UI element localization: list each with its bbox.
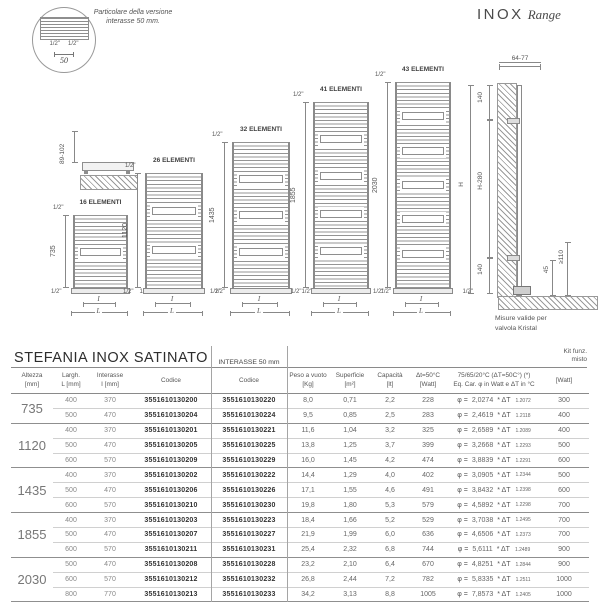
- interasse-dim-label: I: [395, 296, 447, 303]
- watt-cell: 399: [409, 442, 447, 449]
- interasse-cell: 470: [89, 487, 131, 494]
- capacita-cell: 5,2: [371, 517, 409, 524]
- superficie-cell: 1,80: [329, 502, 371, 509]
- equation-cell: φ =5,6111* ΔT1.2489: [447, 546, 541, 553]
- interasse-cell: 370: [89, 517, 131, 524]
- table-row: 5004703551610130208355161013022823,22,10…: [53, 558, 589, 573]
- col-codice-50: Codice: [211, 368, 287, 393]
- equation-cell: φ =4,8251* ΔT1.2844: [447, 561, 541, 568]
- table-row: 4003703551610130201355161013022111,61,04…: [53, 424, 589, 439]
- elements-label: 41 ELEMENTI: [306, 86, 376, 93]
- fitting-label: 1/2": [125, 163, 135, 169]
- floor-hatch: [498, 296, 598, 310]
- codice-cell: 3551610130209: [131, 457, 211, 464]
- fitting-label: 1/2": [51, 289, 61, 295]
- codice-50-cell: 3551610130224: [211, 412, 287, 419]
- largh-cell: 600: [53, 457, 89, 464]
- table-row: 6005703551610130212355161013023226,82,44…: [53, 573, 589, 588]
- watt-cell: 474: [409, 457, 447, 464]
- capacita-cell: 4,2: [371, 457, 409, 464]
- kit-cell: 600: [541, 457, 587, 464]
- altezza-value: 1120: [11, 424, 53, 468]
- codice-cell: 3551610130213: [131, 591, 211, 598]
- towel-opening: [237, 208, 285, 222]
- capacita-cell: 5,3: [371, 502, 409, 509]
- largh-cell: 400: [53, 427, 89, 434]
- dim-h-280: H-280: [477, 170, 484, 192]
- fitting-label: 1/2": [291, 289, 301, 295]
- kit-cell: 700: [541, 502, 587, 509]
- towel-opening: [78, 245, 123, 259]
- superficie-cell: 0,85: [329, 412, 371, 419]
- peso-cell: 11,6: [287, 427, 329, 434]
- capacita-cell: 4,6: [371, 487, 409, 494]
- bottom-collector: [143, 288, 205, 294]
- largh-cell: 800: [53, 591, 89, 598]
- superficie-cell: 1,99: [329, 531, 371, 538]
- kit-cell: 1000: [541, 576, 587, 583]
- wall-hatch: [497, 83, 517, 298]
- kit-cell: 400: [541, 427, 587, 434]
- height-dim-label: 1120: [122, 173, 129, 288]
- watt-cell: 325: [409, 427, 447, 434]
- superficie-cell: 1,45: [329, 457, 371, 464]
- interasse-cell: 470: [89, 442, 131, 449]
- towel-opening: [400, 178, 446, 192]
- towel-opening: [400, 212, 446, 226]
- watt-cell: 579: [409, 502, 447, 509]
- kit-cell: 300: [541, 397, 587, 404]
- codice-cell: 3551610130208: [131, 561, 211, 568]
- interasse-cell: 570: [89, 576, 131, 583]
- largh-cell: 500: [53, 561, 89, 568]
- fitting-label: 1/2": [123, 289, 133, 295]
- interasse-cell: 370: [89, 397, 131, 404]
- superficie-cell: 3,13: [329, 591, 371, 598]
- col-peso: Peso a vuoto[Kg]: [287, 368, 329, 393]
- codice-cell: 3551610130212: [131, 576, 211, 583]
- altezza-group: 735400370355161013020035516101302208,00,…: [11, 394, 589, 424]
- capacita-cell: 7,2: [371, 576, 409, 583]
- equation-cell: φ =5,8335* ΔT1.2511: [447, 576, 541, 583]
- table-row: 4003703551610130203355161013022318,41,66…: [53, 513, 589, 528]
- table-row: 4003703551610130202355161013022214,41,29…: [53, 468, 589, 483]
- table-divider: [287, 346, 288, 602]
- interasse-cell: 570: [89, 502, 131, 509]
- codice-cell: 3551610130207: [131, 531, 211, 538]
- peso-cell: 26,8: [287, 576, 329, 583]
- peso-cell: 23,2: [287, 561, 329, 568]
- larghezza-dim-label: L: [145, 308, 199, 315]
- peso-cell: 21,9: [287, 531, 329, 538]
- col-capacita: Capacità[lt]: [371, 368, 409, 393]
- peso-cell: 16,0: [287, 457, 329, 464]
- codice-cell: 3551610130202: [131, 472, 211, 479]
- larghezza-dim-label: L: [232, 308, 286, 315]
- depth-dim-label: 89-102: [59, 130, 66, 164]
- table-row: 8007703551610130213355161013023334,23,13…: [53, 588, 589, 602]
- towel-opening: [400, 247, 446, 261]
- codice-50-cell: 3551610130226: [211, 487, 287, 494]
- codice-cell: 3551610130204: [131, 412, 211, 419]
- capacita-cell: 6,4: [371, 561, 409, 568]
- fitting-label: 1/2": [293, 92, 303, 98]
- peso-cell: 9,5: [287, 412, 329, 419]
- largh-cell: 500: [53, 412, 89, 419]
- superficie-cell: 1,55: [329, 487, 371, 494]
- codice-50-cell: 3551610130233: [211, 591, 287, 598]
- towel-opening: [318, 244, 364, 258]
- superficie-cell: 1,04: [329, 427, 371, 434]
- larghezza-dim-label: L: [313, 308, 365, 315]
- col-superficie: Superficie[m²]: [329, 368, 371, 393]
- radiator-body: [232, 142, 290, 288]
- radiator-profile: [517, 85, 522, 296]
- radiator-body: [145, 173, 203, 288]
- watt-cell: 782: [409, 576, 447, 583]
- altezza-group: 11204003703551610130201355161013022111,6…: [11, 424, 589, 469]
- col-equation: 75/65/20°C (ΔT=50C°) (*)Eq. Car. φ in Wa…: [447, 368, 541, 393]
- towel-opening: [318, 169, 364, 183]
- kit-cell: 1000: [541, 591, 587, 598]
- fitting-label: 1/2": [212, 132, 222, 138]
- peso-cell: 13,8: [287, 442, 329, 449]
- altezza-value: 735: [11, 394, 53, 423]
- bottom-collector: [393, 288, 453, 294]
- capacita-cell: 3,7: [371, 442, 409, 449]
- peso-cell: 8,0: [287, 397, 329, 404]
- altezza-group: 14354003703551610130202355161013022214,4…: [11, 468, 589, 513]
- codice-50-cell: 3551610130232: [211, 576, 287, 583]
- largh-cell: 600: [53, 502, 89, 509]
- kit-cell: 900: [541, 546, 587, 553]
- col-kit-watt: [Watt]: [541, 368, 587, 393]
- watt-cell: 670: [409, 561, 447, 568]
- col-larghezza: Largh.L [mm]: [53, 368, 89, 393]
- interasse-dim-label: I: [145, 296, 199, 303]
- valve: [513, 286, 531, 295]
- fitting-label: 1/2": [50, 41, 60, 47]
- kit-cell: 500: [541, 442, 587, 449]
- brand-inox: INOX: [477, 6, 524, 23]
- radiator-body: [395, 82, 451, 288]
- interasse-50-group-title: INTERASSE 50 mm: [211, 346, 287, 368]
- table-row: 6005703551610130210355161013023019,81,80…: [53, 498, 589, 512]
- fitting-label: 1/2": [53, 205, 63, 211]
- bottom-collector: [311, 288, 371, 294]
- codice-cell: 3551610130205: [131, 442, 211, 449]
- equation-cell: φ =3,7038* ΔT1.2495: [447, 517, 541, 524]
- interasse-cell: 370: [89, 427, 131, 434]
- altezza-value: 2030: [11, 558, 53, 602]
- largh-cell: 500: [53, 442, 89, 449]
- superficie-cell: 1,25: [329, 442, 371, 449]
- interasse-cell: 470: [89, 412, 131, 419]
- equation-cell: φ =4,5892* ΔT1.2298: [447, 502, 541, 509]
- bracket: [507, 118, 520, 124]
- interasse-50-dim: 50: [33, 56, 95, 65]
- table-title-bar: STEFANIA INOX SATINATO INTERASSE 50 mm K…: [11, 346, 589, 368]
- superficie-cell: 2,44: [329, 576, 371, 583]
- equation-cell: φ =3,8432* ΔT1.2398: [447, 487, 541, 494]
- codice-cell: 3551610130211: [131, 546, 211, 553]
- interasse-cell: 770: [89, 591, 131, 598]
- altezza-group: 18554003703551610130203355161013022318,4…: [11, 513, 589, 558]
- interasse-cell: 370: [89, 472, 131, 479]
- table-divider: [211, 346, 212, 602]
- height-dim-label: 1855: [290, 102, 297, 288]
- table-title: STEFANIA INOX SATINATO: [11, 346, 211, 368]
- superficie-cell: 1,29: [329, 472, 371, 479]
- fitting-label: 1/2": [210, 289, 220, 295]
- towel-opening: [237, 172, 285, 186]
- superficie-cell: 2,10: [329, 561, 371, 568]
- elements-label: 43 ELEMENTI: [388, 66, 458, 73]
- equation-cell: φ =2,6589* ΔT1.2089: [447, 427, 541, 434]
- brand-range: Range: [528, 7, 561, 22]
- largh-cell: 500: [53, 531, 89, 538]
- watt-cell: 402: [409, 472, 447, 479]
- kit-cell: 600: [541, 487, 587, 494]
- col-codice: Codice: [131, 368, 211, 393]
- towel-opening: [318, 207, 364, 221]
- codice-50-cell: 3551610130230: [211, 502, 287, 509]
- interasse-cell: 570: [89, 457, 131, 464]
- table-row: 500470355161013020435516101302249,50,852…: [53, 409, 589, 423]
- equation-cell: φ =7,8573* ΔT1.2405: [447, 591, 541, 598]
- capacita-cell: 6,8: [371, 546, 409, 553]
- fitting-label: 1/2": [375, 72, 385, 78]
- height-dim-label: 2030: [372, 82, 379, 288]
- codice-50-cell: 3551610130221: [211, 427, 287, 434]
- table-row: 5004703551610130206355161013022617,11,55…: [53, 483, 589, 498]
- interasse-cell: 470: [89, 531, 131, 538]
- dim-140-top: 140: [477, 90, 484, 105]
- superficie-cell: 1,66: [329, 517, 371, 524]
- towel-opening: [150, 243, 198, 257]
- kit-header: Kit funz. misto: [541, 346, 587, 368]
- table-row: 5004703551610130207355161013022721,91,99…: [53, 528, 589, 543]
- largh-cell: 400: [53, 472, 89, 479]
- codice-50-cell: 3551610130228: [211, 561, 287, 568]
- codice-cell: 3551610130210: [131, 502, 211, 509]
- bottom-collector: [230, 288, 292, 294]
- peso-cell: 19,8: [287, 502, 329, 509]
- larghezza-dim-label: L: [73, 308, 124, 315]
- equation-cell: φ =3,2668* ΔT1.2293: [447, 442, 541, 449]
- capacita-cell: 4,0: [371, 472, 409, 479]
- depth-range-dim: 64-77: [499, 55, 541, 63]
- towel-opening: [400, 109, 446, 123]
- detail-caption: Particolare della versione interasse 50 …: [92, 8, 174, 27]
- interasse-cell: 570: [89, 546, 131, 553]
- equation-cell: φ =2,0274* ΔT1.2072: [447, 397, 541, 404]
- dim-140-bottom: 140: [477, 262, 484, 277]
- equation-cell: φ =3,8839* ΔT1.2291: [447, 457, 541, 464]
- table-row: 400370355161013020035516101302208,00,712…: [53, 394, 589, 409]
- codice-50-cell: 3551610130222: [211, 472, 287, 479]
- kit-cell: 400: [541, 412, 587, 419]
- bracket: [507, 255, 520, 261]
- capacita-cell: 6,0: [371, 531, 409, 538]
- dim-110: ≥110: [558, 248, 565, 266]
- superficie-cell: 2,32: [329, 546, 371, 553]
- watt-cell: 283: [409, 412, 447, 419]
- peso-cell: 18,4: [287, 517, 329, 524]
- radiator-section-detail: [40, 17, 89, 40]
- watt-cell: 228: [409, 397, 447, 404]
- codice-50-cell: 3551610130229: [211, 457, 287, 464]
- spec-table: STEFANIA INOX SATINATO INTERASSE 50 mm K…: [11, 346, 589, 602]
- table-row: 6005703551610130211355161013023125,42,32…: [53, 543, 589, 557]
- valve-note: Misure valide per valvola Kristal: [495, 314, 587, 334]
- elements-label: 26 ELEMENTI: [138, 157, 210, 164]
- watt-cell: 491: [409, 487, 447, 494]
- altezza-group: 20305004703551610130208355161013022823,2…: [11, 558, 589, 602]
- equation-cell: φ =4,6506* ΔT1.2373: [447, 531, 541, 538]
- dimension-line: [499, 66, 541, 67]
- table-column-headers: Altezza[mm] Largh.L [mm] InterasseI [mm]…: [11, 368, 589, 394]
- peso-cell: 25,4: [287, 546, 329, 553]
- equation-cell: φ =2,4619* ΔT1.2118: [447, 412, 541, 419]
- codice-50-cell: 3551610130225: [211, 442, 287, 449]
- dimension-line: [54, 54, 74, 55]
- kit-cell: 900: [541, 561, 587, 568]
- peso-cell: 14,4: [287, 472, 329, 479]
- altezza-value: 1435: [11, 468, 53, 512]
- kit-cell: 700: [541, 531, 587, 538]
- towel-opening: [237, 245, 285, 259]
- col-watt: Δt=50°C[Watt]: [409, 368, 447, 393]
- kit-cell: 500: [541, 472, 587, 479]
- kit-cell: 700: [541, 517, 587, 524]
- towel-opening: [400, 144, 446, 158]
- capacita-cell: 3,2: [371, 427, 409, 434]
- datasheet-page: { "brand": {"name": "INOX", "range": "Ra…: [0, 0, 600, 600]
- watt-cell: 744: [409, 546, 447, 553]
- interasse-detail-circle: 1/2" 1/2" 50: [32, 7, 96, 73]
- col-altezza: Altezza[mm]: [11, 368, 53, 393]
- largh-cell: 600: [53, 546, 89, 553]
- table-body: 735400370355161013020035516101302208,00,…: [11, 394, 589, 602]
- codice-cell: 3551610130206: [131, 487, 211, 494]
- capacita-cell: 2,2: [371, 397, 409, 404]
- watt-cell: 636: [409, 531, 447, 538]
- codice-50-cell: 3551610130231: [211, 546, 287, 553]
- codice-cell: 3551610130201: [131, 427, 211, 434]
- capacita-cell: 2,5: [371, 412, 409, 419]
- table-row: 6005703551610130209355161013022916,01,45…: [53, 454, 589, 468]
- codice-50-cell: 3551610130223: [211, 517, 287, 524]
- dim-45: 45: [543, 264, 550, 275]
- superficie-cell: 0,71: [329, 397, 371, 404]
- col-interasse: InterasseI [mm]: [89, 368, 131, 393]
- altezza-value: 1855: [11, 513, 53, 557]
- fitting-label: 1/2": [68, 41, 78, 47]
- equation-cell: φ =3,0905* ΔT1.2344: [447, 472, 541, 479]
- dimension-line: [74, 131, 75, 163]
- largh-cell: 400: [53, 397, 89, 404]
- codice-cell: 3551610130203: [131, 517, 211, 524]
- watt-cell: 1005: [409, 591, 447, 598]
- height-dim-label: 1435: [209, 142, 216, 288]
- largh-cell: 400: [53, 517, 89, 524]
- largh-cell: 500: [53, 487, 89, 494]
- towel-opening: [318, 132, 364, 146]
- codice-50-cell: 3551610130227: [211, 531, 287, 538]
- codice-50-cell: 3551610130220: [211, 397, 287, 404]
- dim-h: H: [458, 180, 465, 189]
- capacita-cell: 8,8: [371, 591, 409, 598]
- brand-logo: INOXRange: [477, 6, 561, 24]
- interasse-dim-label: I: [232, 296, 286, 303]
- larghezza-dim-label: L: [395, 308, 447, 315]
- interasse-dim-label: I: [73, 296, 124, 303]
- radiator-body: [313, 102, 369, 288]
- table-row: 5004703551610130205355161013022513,81,25…: [53, 439, 589, 454]
- towel-opening: [150, 204, 198, 218]
- interasse-cell: 470: [89, 561, 131, 568]
- watt-cell: 529: [409, 517, 447, 524]
- height-dim-label: 735: [50, 215, 57, 288]
- largh-cell: 600: [53, 576, 89, 583]
- peso-cell: 34,2: [287, 591, 329, 598]
- fitting-label: 1/2": [373, 289, 383, 295]
- interasse-dim-label: I: [313, 296, 365, 303]
- peso-cell: 17,1: [287, 487, 329, 494]
- side-view-drawing: 64-77 140 H-280 140 H 45 ≥110 Misure val…: [455, 50, 600, 350]
- codice-cell: 3551610130200: [131, 397, 211, 404]
